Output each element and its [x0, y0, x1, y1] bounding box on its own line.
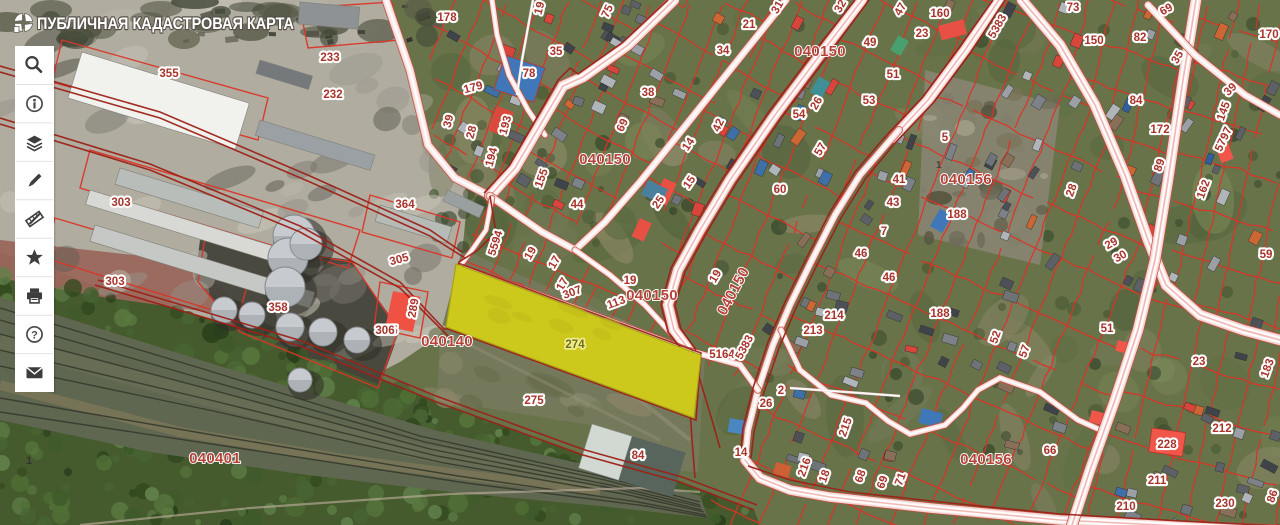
svg-text:44: 44 [571, 199, 584, 211]
svg-text:274: 274 [565, 339, 585, 351]
svg-text:14: 14 [735, 447, 748, 459]
svg-text:51: 51 [887, 69, 900, 81]
svg-text:84: 84 [1130, 95, 1143, 107]
svg-text:34: 34 [717, 45, 730, 57]
svg-text:7: 7 [881, 226, 887, 238]
svg-text:355: 355 [159, 68, 179, 80]
svg-text:040401: 040401 [189, 450, 241, 467]
svg-text:213: 213 [803, 325, 822, 337]
svg-text:040150: 040150 [626, 287, 678, 304]
svg-text:150: 150 [1084, 35, 1103, 47]
svg-text:188: 188 [930, 308, 950, 320]
svg-text:210: 210 [1116, 501, 1135, 513]
svg-text:84: 84 [632, 450, 645, 462]
svg-text:1: 1 [26, 455, 32, 467]
svg-text:275: 275 [524, 395, 544, 407]
svg-text:1: 1 [936, 160, 942, 171]
svg-text:35: 35 [550, 46, 563, 58]
svg-text:040150: 040150 [794, 43, 846, 60]
svg-text:38: 38 [642, 87, 655, 99]
svg-text:46: 46 [855, 248, 868, 260]
svg-text:306: 306 [375, 325, 394, 337]
svg-text:43: 43 [887, 197, 900, 209]
svg-text:82: 82 [1134, 32, 1147, 44]
svg-text:040140: 040140 [421, 333, 473, 350]
svg-text:178: 178 [437, 12, 457, 24]
svg-text:73: 73 [1067, 2, 1080, 14]
svg-text:53: 53 [863, 95, 876, 107]
svg-text:23: 23 [1193, 356, 1206, 368]
svg-text:41: 41 [893, 174, 906, 186]
svg-text:170: 170 [1259, 29, 1278, 41]
svg-text:54: 54 [793, 109, 806, 121]
svg-text:26: 26 [760, 398, 773, 410]
svg-text:303: 303 [111, 197, 130, 209]
svg-text:49: 49 [864, 37, 877, 49]
svg-text:51: 51 [1101, 323, 1114, 335]
svg-text:232: 232 [323, 89, 342, 101]
svg-text:230: 230 [1215, 498, 1234, 510]
svg-text:2: 2 [778, 385, 784, 397]
svg-text:214: 214 [824, 310, 844, 322]
svg-text:364: 364 [395, 199, 415, 211]
svg-text:212: 212 [1212, 423, 1231, 435]
svg-text:172: 172 [1150, 124, 1169, 136]
svg-text:ПУБЛИЧНАЯ КАДАСТРОВАЯ КАРТА: ПУБЛИЧНАЯ КАДАСТРОВАЯ КАРТА [37, 14, 294, 33]
svg-text:78: 78 [523, 68, 536, 80]
svg-text:188: 188 [947, 209, 967, 221]
svg-text:46: 46 [883, 272, 896, 284]
svg-text:?: ? [31, 330, 38, 342]
svg-text:228: 228 [1157, 439, 1177, 451]
svg-text:5164: 5164 [709, 349, 735, 361]
svg-text:59: 59 [1260, 249, 1273, 261]
svg-text:040156: 040156 [960, 451, 1012, 468]
svg-text:040156: 040156 [940, 171, 992, 188]
svg-text:040150: 040150 [579, 151, 631, 168]
svg-text:21: 21 [743, 19, 756, 31]
svg-text:19: 19 [624, 275, 637, 287]
svg-text:160: 160 [930, 8, 949, 20]
svg-text:233: 233 [320, 52, 339, 64]
svg-text:5: 5 [942, 132, 949, 144]
svg-text:66: 66 [1044, 445, 1057, 457]
svg-text:358: 358 [268, 302, 288, 314]
svg-text:60: 60 [774, 184, 787, 196]
svg-text:23: 23 [916, 28, 929, 40]
svg-text:303: 303 [105, 276, 124, 288]
svg-text:211: 211 [1148, 475, 1167, 487]
